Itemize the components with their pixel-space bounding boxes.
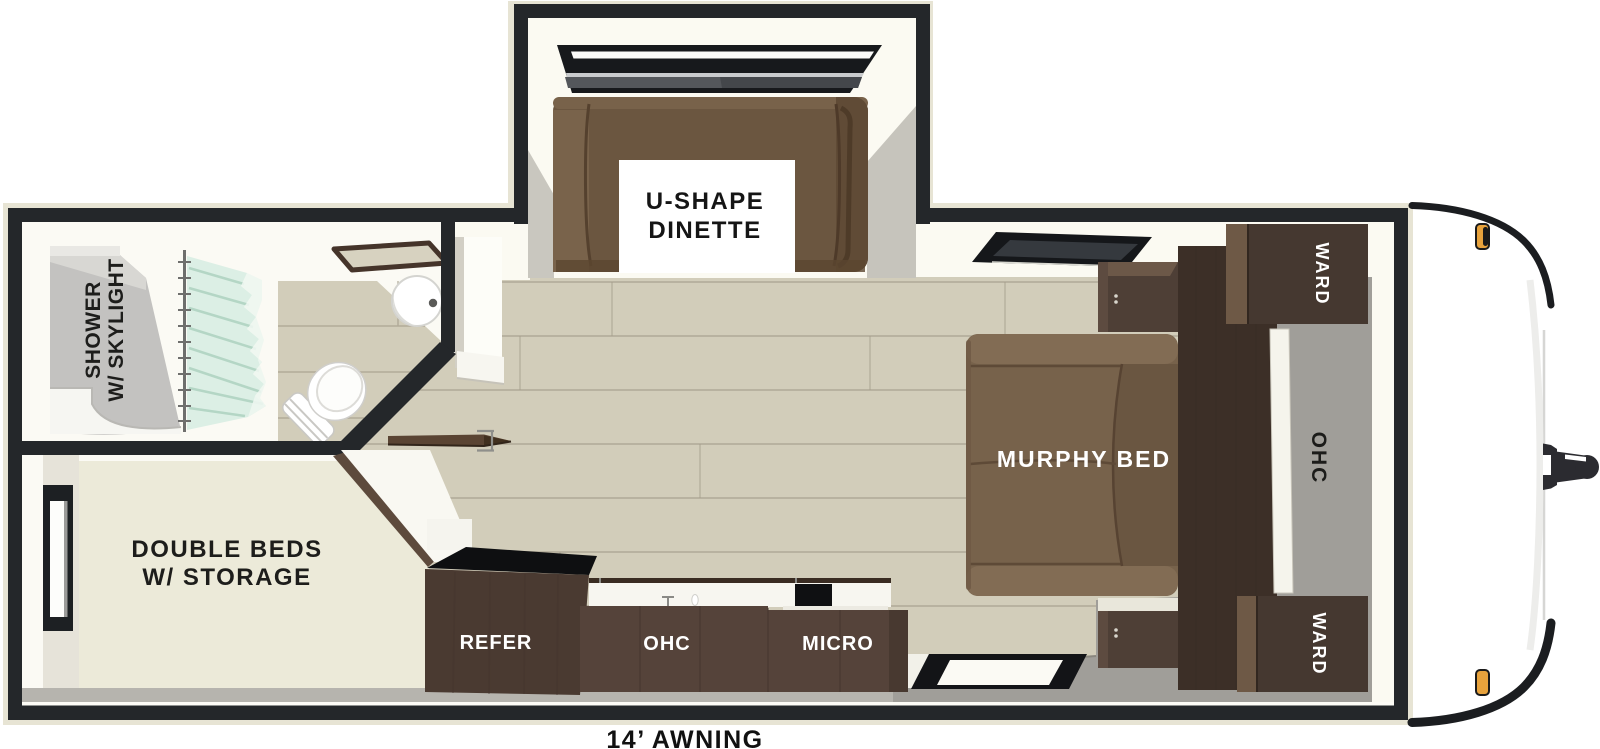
svg-text:MURPHY BED: MURPHY BED [997,446,1171,472]
svg-text:W/ SKYLIGHT: W/ SKYLIGHT [105,258,128,401]
svg-text:WARD: WARD [1312,243,1332,306]
svg-text:14’ AWNING: 14’ AWNING [606,726,763,749]
svg-text:U-SHAPE: U-SHAPE [646,188,765,215]
svg-text:OHC: OHC [643,633,690,655]
svg-text:DINETTE: DINETTE [648,217,761,244]
svg-text:W/ STORAGE: W/ STORAGE [142,564,311,591]
svg-text:MICRO: MICRO [802,633,874,655]
svg-text:REFER: REFER [460,632,533,654]
svg-text:SHOWER: SHOWER [82,281,105,379]
svg-text:WARD: WARD [1309,613,1329,676]
svg-text:OHC: OHC [1307,432,1330,485]
svg-text:DOUBLE BEDS: DOUBLE BEDS [131,536,322,563]
